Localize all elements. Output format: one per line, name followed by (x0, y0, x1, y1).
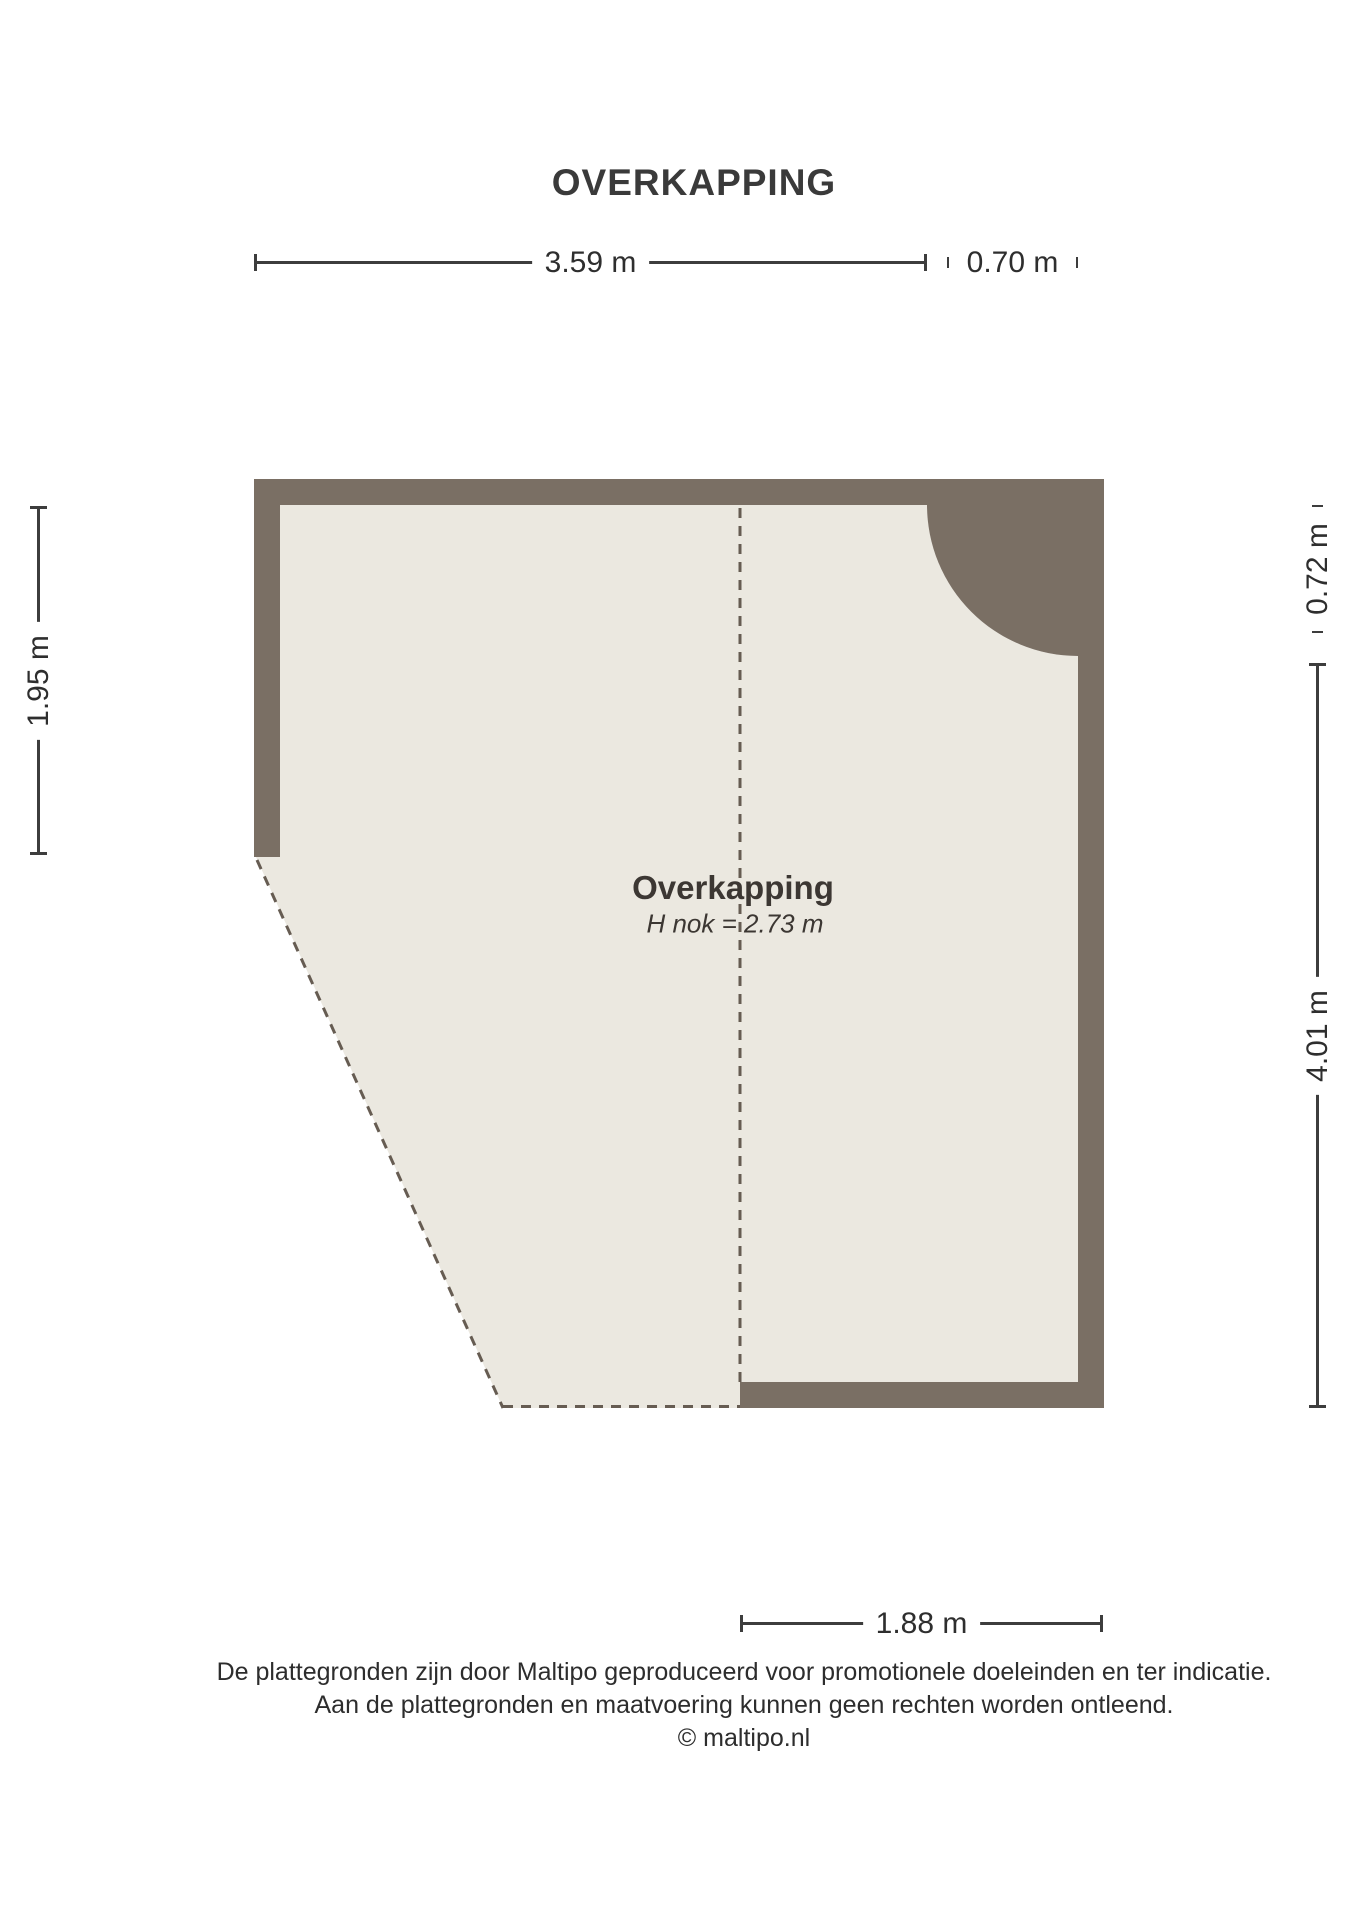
wall-bottom (740, 1382, 1104, 1408)
footer-line: Aan de plattegronden en maatvoering kunn… (217, 1689, 1272, 1722)
footer-disclaimer: De plattegronden zijn door Maltipo gepro… (217, 1656, 1272, 1755)
dimension-label: 0.72 m (1301, 517, 1335, 621)
dimension-label: 1.95 m (22, 622, 56, 740)
dimension-tick (1309, 1405, 1326, 1408)
dimension-tick (30, 506, 47, 509)
dimension-tick (30, 852, 47, 855)
floor-plan (254, 479, 1104, 1409)
wall-top (254, 479, 1104, 505)
footer-copyright: © maltipo.nl (217, 1722, 1272, 1755)
footer-line: De plattegronden zijn door Maltipo gepro… (217, 1656, 1272, 1689)
dimension-tick (924, 254, 927, 271)
dimension-tick (1312, 505, 1323, 507)
dimension-bottom-width: 1.88 m (740, 1615, 1103, 1632)
floor-area (256, 505, 1078, 1408)
dimension-label: 3.59 m (532, 246, 650, 280)
dimension-tick (947, 257, 949, 268)
dimension-right-height: 4.01 m (1309, 663, 1326, 1408)
dimension-tick (1076, 257, 1078, 268)
dimension-right-top-height: 0.72 m (1309, 505, 1326, 633)
room-name-label: Overkapping (632, 869, 834, 907)
dimension-top-right-width: 0.70 m (947, 254, 1078, 271)
dimension-tick (1312, 631, 1323, 633)
floor-plan-svg (254, 479, 1104, 1409)
wall-right (1078, 479, 1104, 1408)
wall-left (254, 479, 280, 857)
room-ridge-height-label: H nok = 2.73 m (646, 909, 823, 940)
dimension-top-width: 3.59 m (254, 254, 927, 271)
dimension-label: 1.88 m (863, 1607, 981, 1641)
dimension-tick (1309, 663, 1326, 666)
dimension-label: 4.01 m (1301, 977, 1335, 1095)
dimension-label: 0.70 m (961, 246, 1065, 280)
dimension-tick (1100, 1615, 1103, 1632)
dimension-tick (254, 254, 257, 271)
page-title: OVERKAPPING (552, 162, 836, 204)
dimension-left-height: 1.95 m (30, 506, 47, 855)
dimension-tick (740, 1615, 743, 1632)
